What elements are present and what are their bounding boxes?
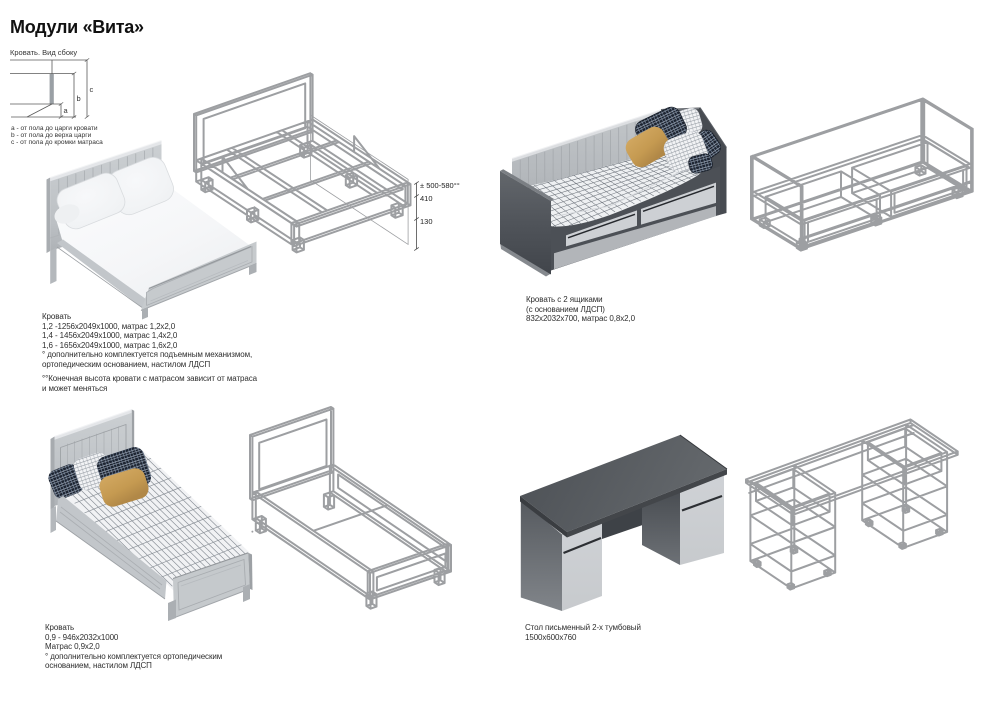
- svg-text:c: c: [90, 85, 94, 94]
- svg-text:b: b: [77, 94, 81, 103]
- svg-text:410: 410: [420, 194, 433, 203]
- svg-text:130: 130: [420, 217, 433, 226]
- svg-text:± 500-580°°: ± 500-580°°: [420, 181, 460, 190]
- svg-text:a: a: [64, 106, 69, 115]
